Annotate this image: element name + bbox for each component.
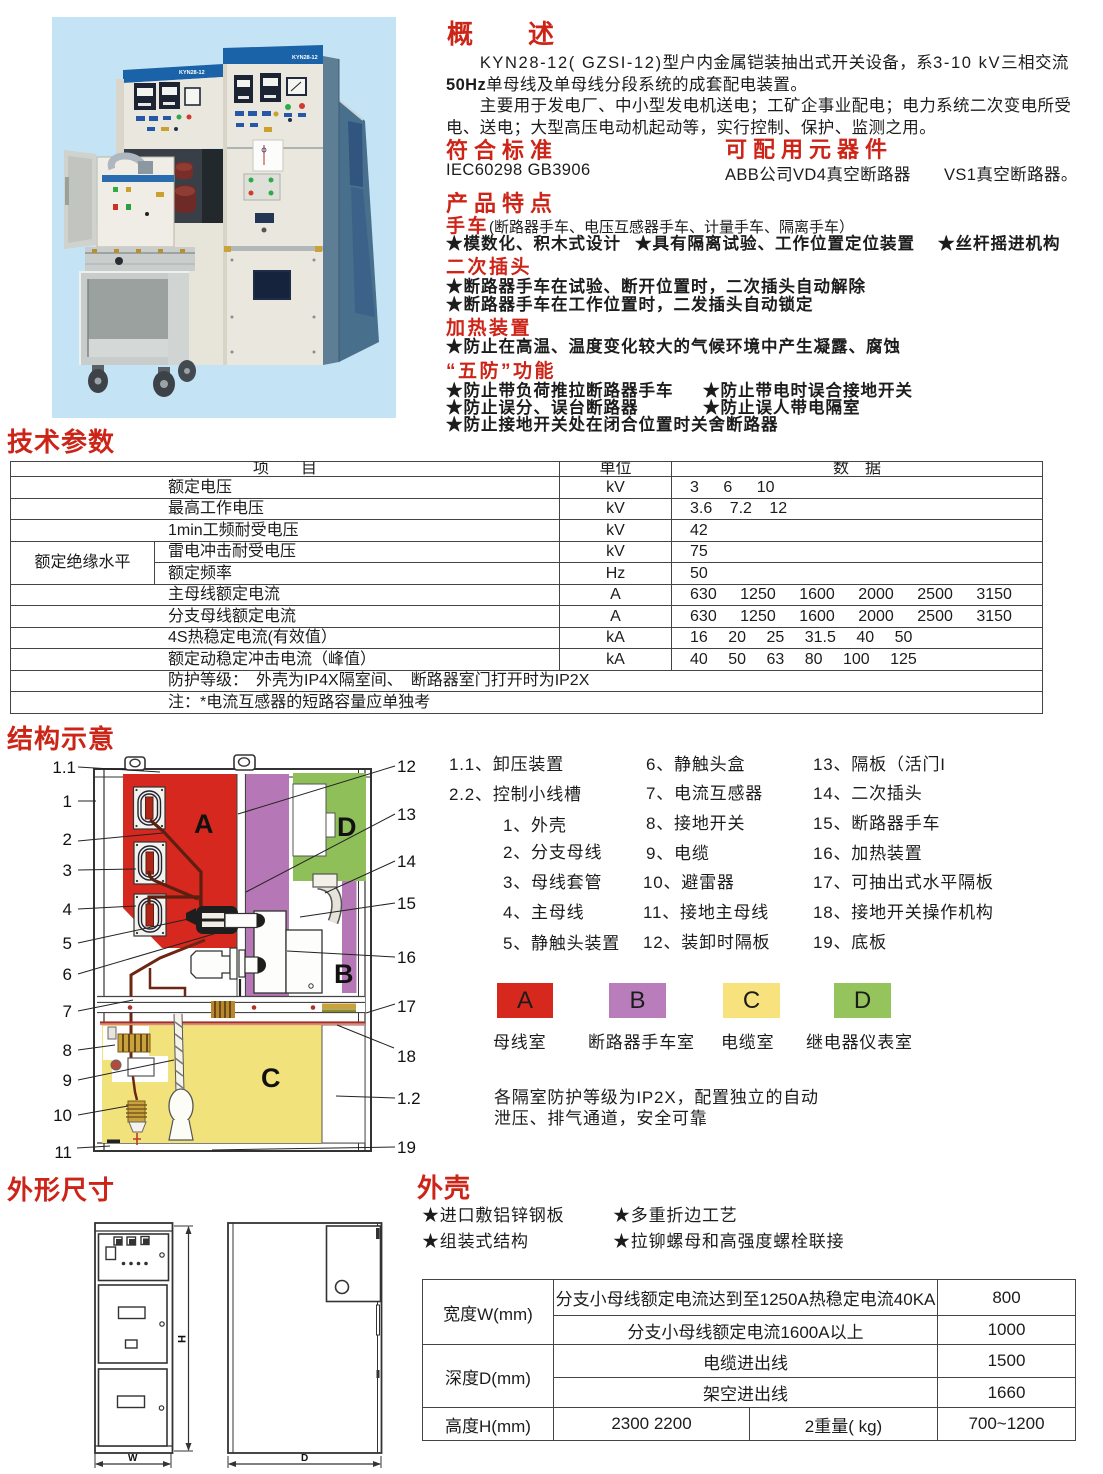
svg-text:KYN28-12: KYN28-12	[179, 70, 205, 76]
svg-text:17: 17	[397, 997, 416, 1016]
svg-text:KYN28-12: KYN28-12	[292, 55, 318, 61]
svg-text:D: D	[301, 1453, 308, 1464]
svg-text:3: 3	[63, 861, 72, 880]
svg-text:14: 14	[397, 852, 416, 871]
svg-text:4: 4	[63, 900, 72, 919]
svg-text:H: H	[175, 1335, 187, 1343]
svg-text:8: 8	[63, 1041, 72, 1060]
svg-text:15: 15	[397, 894, 416, 913]
svg-text:1: 1	[63, 792, 72, 811]
svg-text:W: W	[128, 1453, 138, 1464]
svg-text:11: 11	[54, 1143, 72, 1162]
svg-text:7: 7	[63, 1002, 72, 1021]
svg-text:10: 10	[53, 1106, 72, 1125]
svg-text:18: 18	[397, 1047, 416, 1066]
svg-text:1.1: 1.1	[52, 758, 76, 777]
svg-text:B: B	[334, 959, 354, 989]
svg-text:6: 6	[63, 965, 72, 984]
svg-text:13: 13	[397, 805, 416, 824]
svg-text:2: 2	[63, 830, 72, 849]
svg-text:5: 5	[63, 934, 72, 953]
svg-text:12: 12	[397, 757, 416, 776]
svg-text:D: D	[337, 812, 357, 842]
svg-text:C: C	[261, 1063, 281, 1093]
svg-text:9: 9	[63, 1071, 72, 1090]
svg-text:1.2: 1.2	[397, 1089, 421, 1108]
svg-text:16: 16	[397, 948, 416, 967]
svg-text:19: 19	[397, 1138, 416, 1157]
svg-text:A: A	[194, 809, 214, 839]
